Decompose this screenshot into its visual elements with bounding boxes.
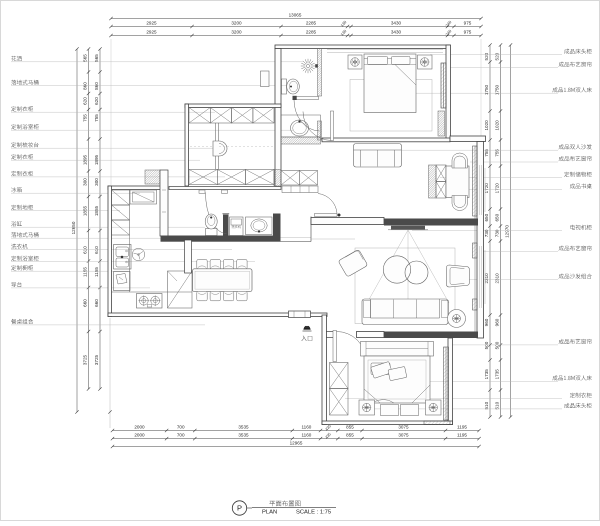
svg-text:620: 620 — [83, 97, 88, 105]
svg-text:2000: 2000 — [134, 425, 145, 430]
svg-text:730: 730 — [484, 229, 489, 237]
svg-text:500: 500 — [484, 341, 489, 349]
svg-text:730: 730 — [495, 229, 500, 237]
svg-text:P: P — [237, 504, 242, 513]
svg-text:3075: 3075 — [398, 425, 409, 430]
svg-text:1020: 1020 — [495, 120, 500, 131]
svg-text:PLAN: PLAN — [262, 510, 277, 516]
svg-text:1750: 1750 — [495, 84, 500, 95]
svg-text:13065: 13065 — [289, 13, 302, 18]
svg-text:520: 520 — [495, 52, 500, 60]
svg-text:975: 975 — [464, 21, 472, 26]
svg-text:3430: 3430 — [391, 21, 402, 26]
svg-text:660: 660 — [83, 299, 88, 307]
svg-text:565: 565 — [94, 54, 99, 62]
svg-text:1195: 1195 — [457, 425, 467, 430]
svg-text:1735: 1735 — [495, 369, 500, 380]
svg-text:2285: 2285 — [306, 21, 317, 26]
svg-text:855: 855 — [346, 433, 354, 438]
svg-text:960: 960 — [495, 318, 500, 326]
svg-text:755: 755 — [94, 114, 99, 122]
svg-text:12965: 12965 — [290, 441, 303, 446]
svg-text:3200: 3200 — [231, 21, 242, 26]
svg-text:1895: 1895 — [94, 154, 99, 165]
svg-text:700: 700 — [177, 425, 185, 430]
svg-text:1160: 1160 — [301, 425, 311, 430]
svg-text:3200: 3200 — [231, 30, 242, 35]
svg-text:1155: 1155 — [94, 267, 99, 277]
svg-text:2310: 2310 — [495, 273, 500, 284]
svg-text:3535: 3535 — [238, 425, 249, 430]
svg-text:975: 975 — [464, 30, 472, 35]
svg-text:1895: 1895 — [83, 154, 88, 165]
svg-text:755: 755 — [495, 149, 500, 157]
svg-text:12970: 12970 — [505, 225, 510, 238]
svg-text:700: 700 — [177, 433, 185, 438]
svg-text:650: 650 — [495, 213, 500, 221]
svg-text:300: 300 — [83, 178, 88, 186]
svg-text:2925: 2925 — [146, 21, 157, 26]
svg-text:12650: 12650 — [71, 221, 76, 234]
svg-text:2285: 2285 — [306, 30, 317, 35]
svg-text:3535: 3535 — [238, 433, 249, 438]
svg-text:3725: 3725 — [94, 354, 99, 365]
svg-text:1155: 1155 — [83, 267, 88, 277]
svg-text:2925: 2925 — [146, 30, 157, 35]
svg-text:620: 620 — [94, 97, 99, 105]
svg-text:3725: 3725 — [83, 354, 88, 365]
svg-text:960: 960 — [484, 318, 489, 326]
svg-text:1160: 1160 — [301, 433, 311, 438]
svg-text:SCALE : 1:75: SCALE : 1:75 — [296, 510, 331, 516]
svg-text:755: 755 — [484, 149, 489, 157]
svg-text:1195: 1195 — [457, 433, 467, 438]
svg-text:3075: 3075 — [398, 433, 409, 438]
svg-text:1735: 1735 — [484, 369, 489, 380]
svg-text:660: 660 — [94, 299, 99, 307]
svg-text:1750: 1750 — [484, 84, 489, 95]
svg-text:3430: 3430 — [391, 30, 402, 35]
svg-text:520: 520 — [484, 52, 489, 60]
svg-text:1720: 1720 — [495, 183, 500, 194]
svg-text:500: 500 — [495, 341, 500, 349]
svg-text:755: 755 — [83, 114, 88, 122]
svg-text:1020: 1020 — [484, 120, 489, 131]
svg-text:565: 565 — [83, 54, 88, 62]
svg-text:855: 855 — [346, 425, 354, 430]
svg-text:510: 510 — [484, 401, 489, 409]
svg-text:2000: 2000 — [134, 433, 145, 438]
svg-text:650: 650 — [484, 213, 489, 221]
svg-text:300: 300 — [94, 178, 99, 186]
svg-text:510: 510 — [495, 401, 500, 409]
